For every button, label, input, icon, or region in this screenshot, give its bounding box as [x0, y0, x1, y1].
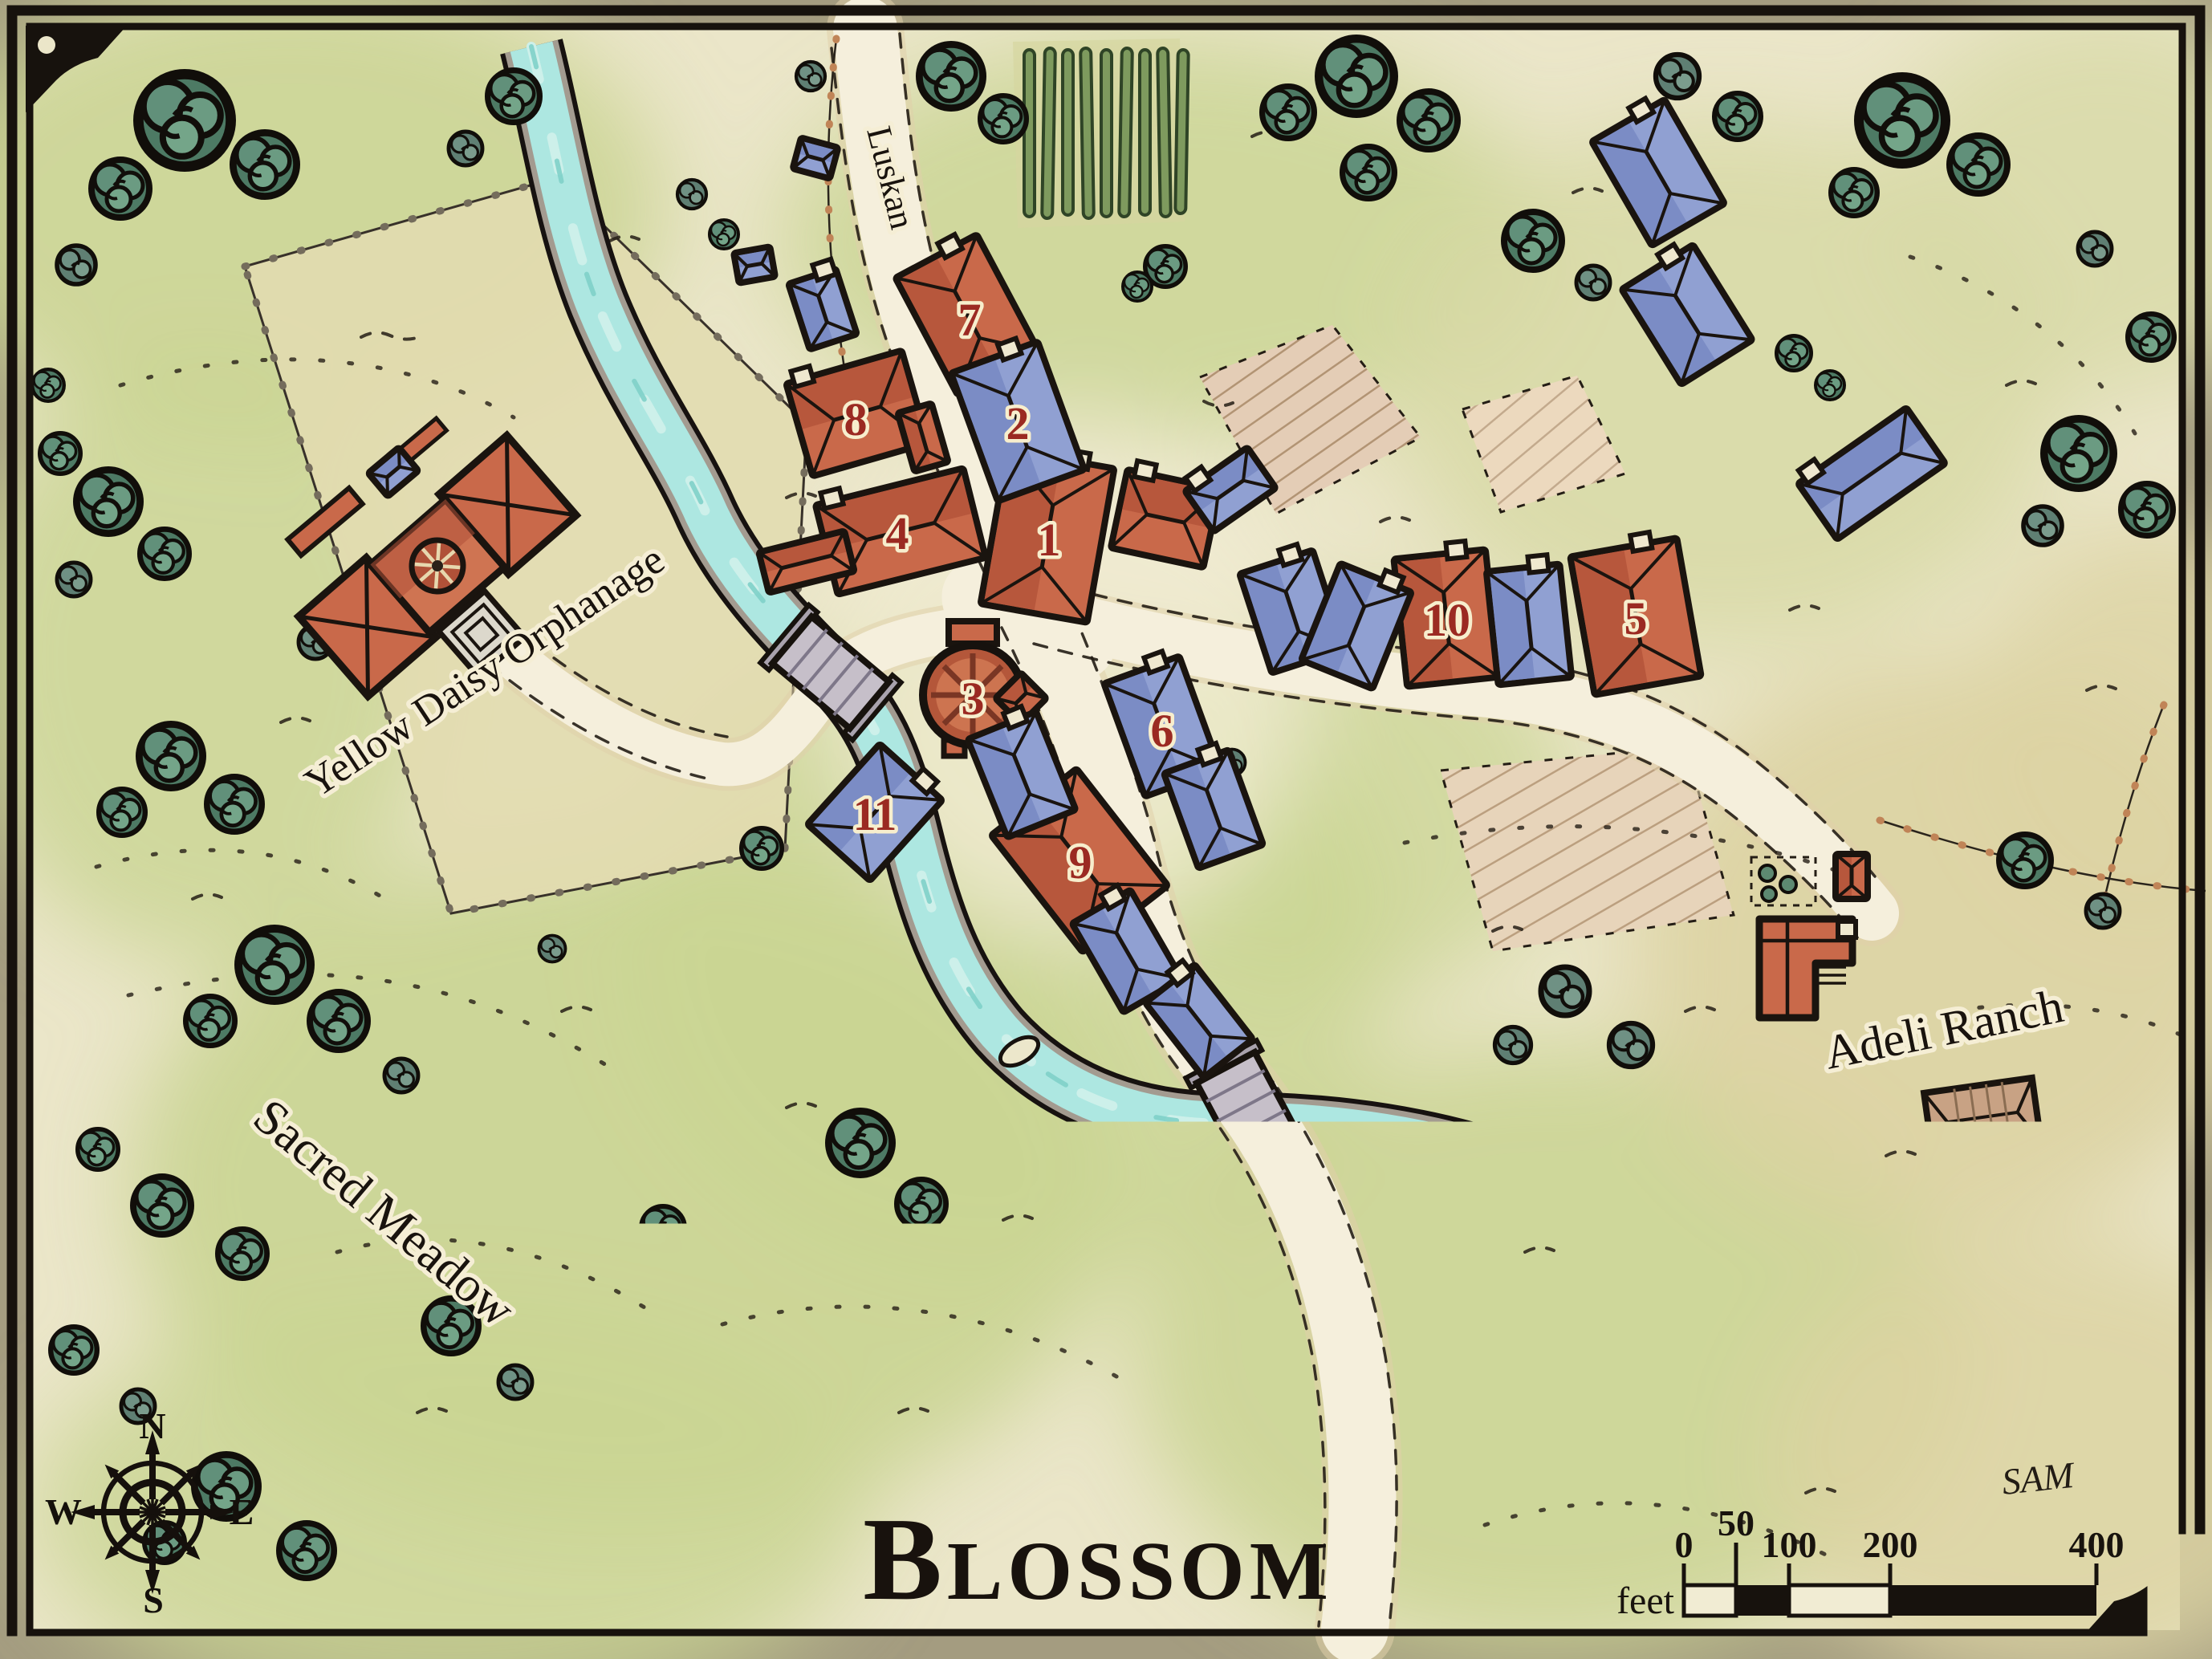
scale-tick-200: 200: [1863, 1524, 1918, 1565]
house: [734, 246, 775, 283]
building-marker-1: 1: [1038, 514, 1061, 566]
building-marker-7: 7: [958, 294, 982, 346]
crop-rows-field: [1013, 39, 1189, 228]
cartographer-signature: SAM: [2000, 1454, 2078, 1502]
compass-north-label: N: [139, 1405, 165, 1446]
compass-east-label: E: [230, 1491, 254, 1532]
scale-unit-label: feet: [1616, 1580, 1675, 1622]
scale-tick-400: 400: [2069, 1524, 2125, 1565]
house: [793, 137, 839, 178]
fantasy-town-map: Luskan Yellow Daisy Orphanage Sacred Mea…: [0, 0, 2212, 1659]
building-marker-3: 3: [962, 673, 985, 725]
compass-south-label: S: [143, 1580, 164, 1620]
building-marker-8: 8: [844, 393, 868, 445]
building-marker-2: 2: [1006, 397, 1030, 449]
scale-tick-0: 0: [1675, 1524, 1694, 1565]
scale-tick-50: 50: [1718, 1502, 1755, 1543]
scale-tick-100: 100: [1762, 1524, 1817, 1565]
building-marker-10: 10: [1424, 594, 1470, 646]
house: [1836, 854, 1868, 899]
building-marker-6: 6: [1151, 705, 1174, 757]
building-marker-4: 4: [886, 507, 909, 559]
building-marker-9: 9: [1069, 836, 1092, 888]
building-marker-5: 5: [1624, 592, 1648, 644]
compass-west-label: W: [45, 1491, 82, 1532]
house: [1485, 554, 1572, 685]
building-marker-11: 11: [853, 788, 897, 840]
map-title: Blossom: [863, 1494, 1333, 1625]
map-illustration: Luskan Yellow Daisy Orphanage Sacred Mea…: [0, 0, 2212, 1659]
